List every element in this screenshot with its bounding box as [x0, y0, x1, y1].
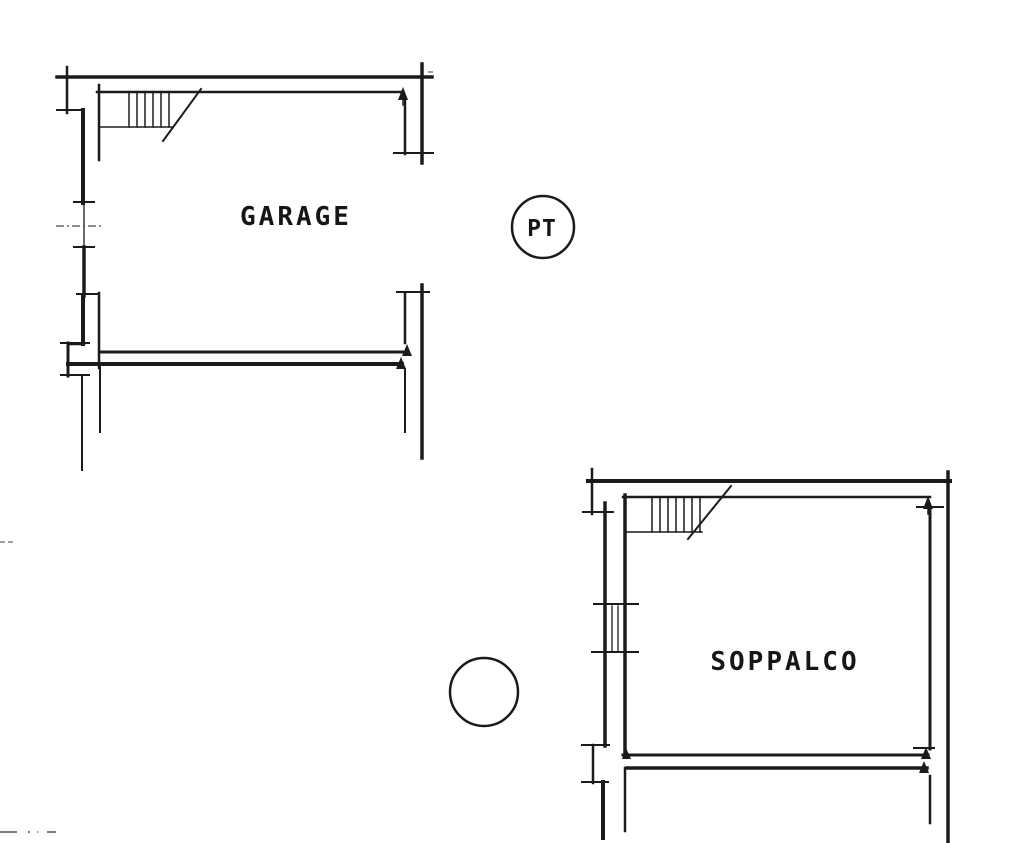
floor-level-label: PT: [527, 216, 557, 242]
soppalco-stairs-icon: [625, 486, 731, 539]
garage-room-label: GARAGE: [240, 202, 352, 232]
upper-level-badge: [450, 658, 518, 726]
soppalco-stairs-direction-line: [688, 486, 731, 539]
soppalco-plan: SOPPALCO: [582, 469, 950, 843]
soppalco-window-symbol: [592, 604, 638, 652]
garage-plan: GARAGE: [56, 64, 433, 470]
floor-level-badge: PT: [512, 196, 574, 258]
garage-wall-end-arrow: [402, 344, 412, 356]
soppalco-room-label: SOPPALCO: [710, 647, 859, 677]
upper-level-circle: [450, 658, 518, 726]
scan-margin-marks: [0, 72, 433, 832]
floor-plan-sheet: GARAGE PT: [0, 0, 1023, 843]
floor-plan-drawing: GARAGE PT: [0, 0, 1023, 843]
garage-stairs-icon: [99, 85, 201, 160]
garage-wall-end-arrow: [398, 87, 408, 100]
